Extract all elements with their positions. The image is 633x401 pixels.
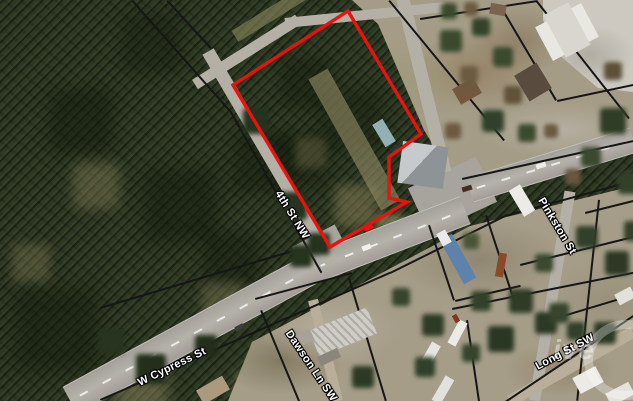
- aerial-map: 4th St NW W Cypress St Dawson Ln SW Pink…: [0, 0, 633, 401]
- watermark-text: ive: [553, 334, 595, 366]
- parcel-polygon: [233, 11, 421, 247]
